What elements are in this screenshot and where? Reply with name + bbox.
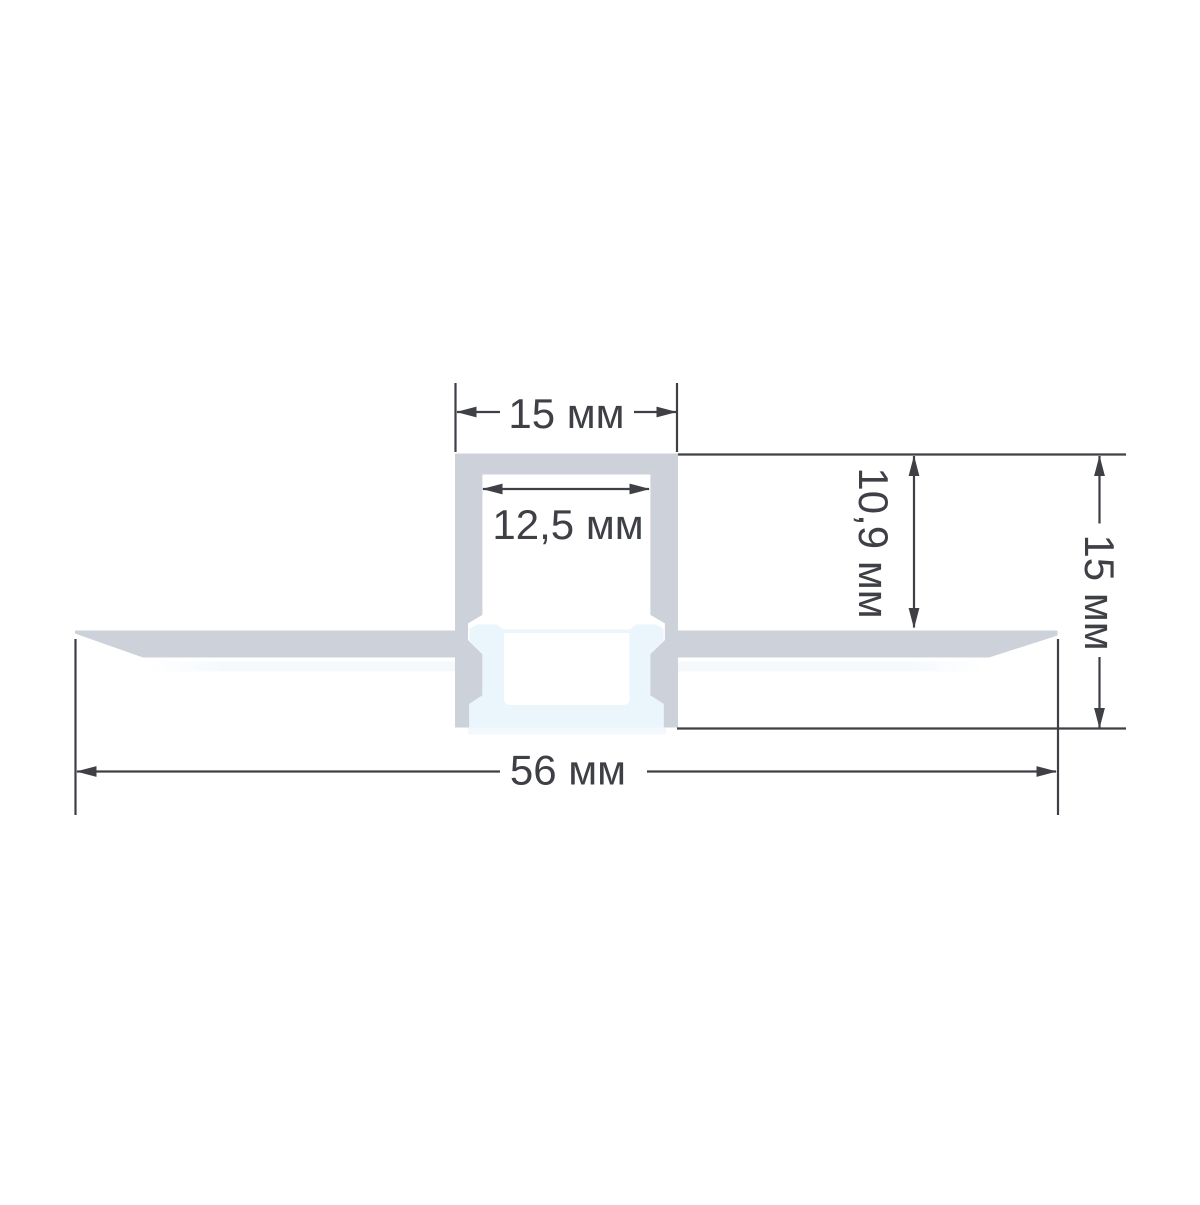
svg-text:56 мм: 56 мм xyxy=(510,747,626,794)
svg-text:10,9 мм: 10,9 мм xyxy=(850,467,897,618)
svg-text:15 мм: 15 мм xyxy=(508,390,624,437)
svg-text:12,5 мм: 12,5 мм xyxy=(492,501,643,548)
svg-text:15 мм: 15 мм xyxy=(1076,534,1123,650)
